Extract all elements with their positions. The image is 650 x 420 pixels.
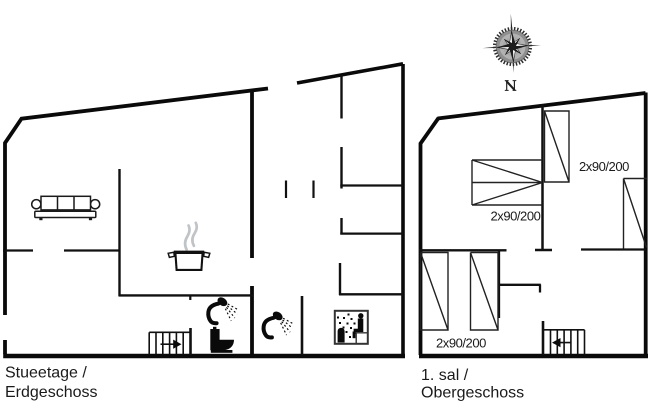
- svg-text:2x90/200: 2x90/200: [436, 335, 486, 350]
- svg-text:Erdgeschoss: Erdgeschoss: [5, 384, 98, 401]
- svg-text:Stueetage /: Stueetage /: [5, 365, 87, 382]
- svg-text:Obergeschoss: Obergeschoss: [421, 385, 524, 402]
- svg-text:2x90/200: 2x90/200: [491, 208, 541, 223]
- svg-text:1. sal /: 1. sal /: [421, 367, 469, 384]
- svg-text:2x90/200: 2x90/200: [579, 159, 629, 174]
